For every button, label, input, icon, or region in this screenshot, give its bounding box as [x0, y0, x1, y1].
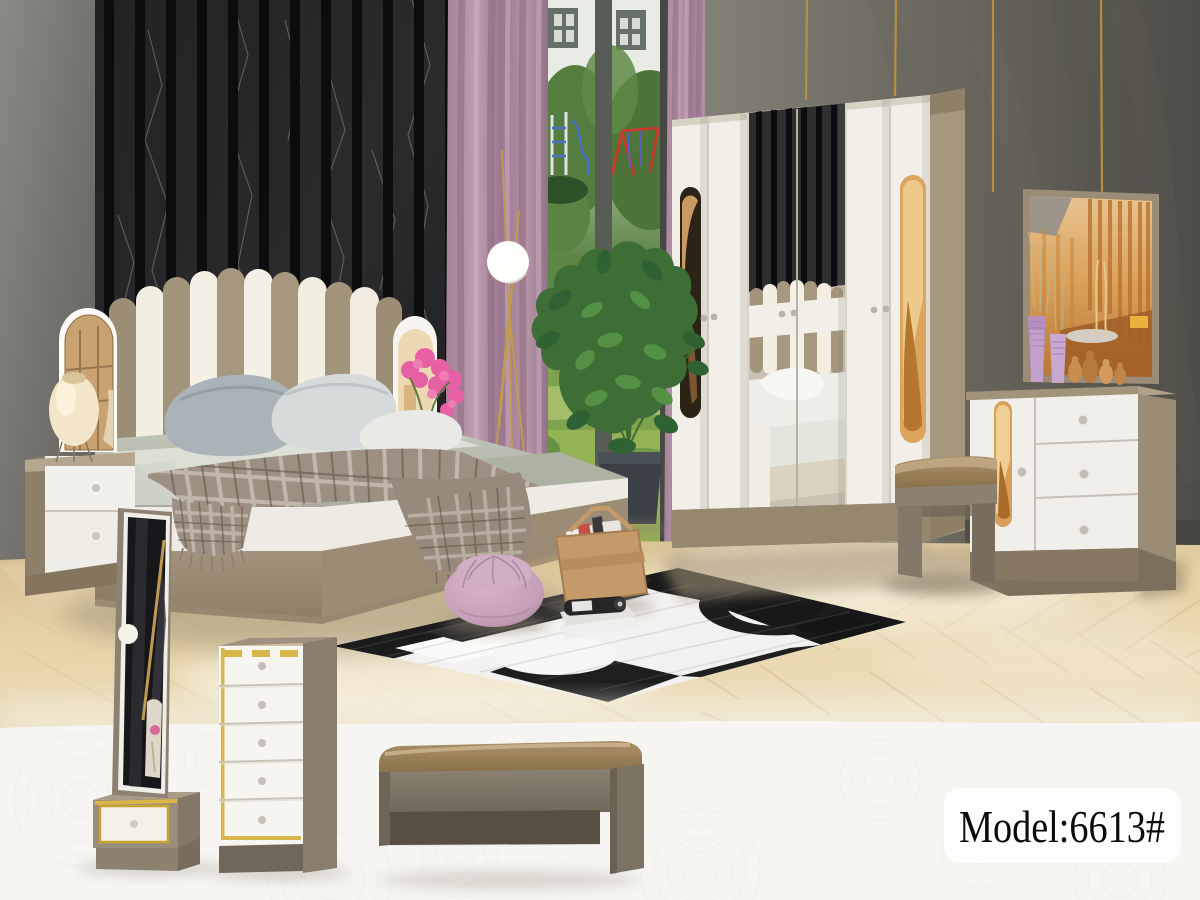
svg-text:Model:6613#: Model:6613# — [959, 801, 1165, 852]
